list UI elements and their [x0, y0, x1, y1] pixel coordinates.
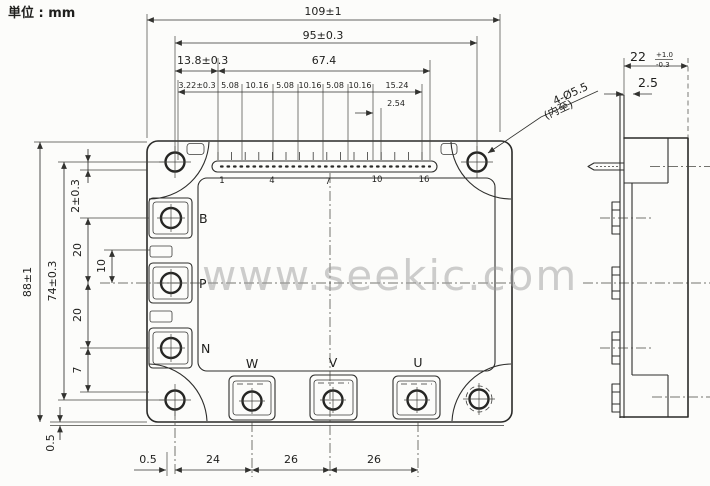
dim-26b: 26 — [367, 453, 381, 466]
dimensions-bottom: 0.5 24 26 26 — [134, 410, 418, 477]
dim-pitch-6: 10.16 — [349, 81, 372, 90]
terminal-B — [149, 198, 192, 238]
terminal-W — [229, 376, 275, 420]
terminal-N-cross — [157, 334, 185, 362]
dim-20-lower: 20 — [71, 308, 84, 322]
side-dimensions: 22 +1.0 -0.3 2.5 — [604, 49, 688, 138]
pin-strip — [212, 152, 437, 172]
terminal-W-cross — [239, 388, 265, 414]
side-bump-bottom — [612, 384, 620, 412]
corner-fillet-br — [452, 364, 511, 421]
pin-number-4: 4 — [269, 176, 274, 186]
side-outline — [588, 95, 710, 418]
dim-pitch-4: 10.16 — [299, 81, 322, 90]
dim-22: 22 — [630, 49, 646, 64]
dim-13-8: 13.8±0.3 — [177, 54, 228, 67]
dim-pitch-7: 15.24 — [386, 81, 409, 90]
dim-pitch-3: 5.08 — [276, 81, 294, 90]
terminal-V-block — [310, 375, 357, 420]
side-blocks — [624, 138, 668, 417]
dim-25: 2.5 — [638, 75, 658, 90]
technical-drawing-page: 単位 : mm — [0, 0, 710, 486]
dim-05-bottom: 0.5 — [139, 453, 157, 466]
unit-label: 単位 : mm — [8, 5, 75, 21]
drawing-canvas: 単位 : mm — [0, 0, 710, 486]
center-extensions-bottom — [175, 410, 418, 477]
dim-pitch-2: 10.16 — [246, 81, 269, 90]
dim-pitch-5: 5.08 — [326, 81, 344, 90]
pin-ticks — [218, 152, 422, 160]
pin-number-16: 16 — [419, 175, 430, 185]
dim-22-tol-minus: -0.3 — [656, 61, 670, 69]
notch-tl — [187, 144, 204, 155]
notch-tr — [441, 144, 457, 155]
terminal-U — [393, 376, 440, 419]
pin-number-10: 10 — [372, 175, 383, 185]
dim-22-tol-plus: +1.0 — [656, 51, 673, 59]
dim-95: 95±0.3 — [303, 29, 344, 42]
dim-20-upper: 20 — [71, 243, 84, 257]
side-centerlines — [600, 167, 710, 398]
dim-7: 7 — [71, 367, 84, 374]
dim-26a: 26 — [284, 453, 298, 466]
terminal-U-block — [393, 376, 440, 419]
watermark: www.seekic.com — [202, 251, 578, 300]
side-baseplate-edges — [620, 95, 624, 418]
side-tab-lower — [150, 311, 172, 322]
dim-24: 24 — [206, 453, 220, 466]
dim-pitch-0: 3.22±0.3 — [178, 81, 215, 90]
dimensions-top: 109±1 95±0.3 13.8±0.3 67.4 3.22±0.3 5.08… — [147, 5, 500, 160]
dim-109: 109±1 — [304, 5, 341, 18]
dim-2: 2±0.3 — [69, 179, 82, 213]
dim-pitch-1: 5.08 — [221, 81, 239, 90]
terminal-label-B: B — [199, 211, 208, 226]
front-view: 1 4 7 10 16 — [21, 5, 710, 479]
terminals-bottom: W V U — [229, 355, 440, 420]
dim-74: 74±0.3 — [46, 261, 59, 302]
dim-88: 88±1 — [21, 267, 34, 297]
dim-67-4: 67.4 — [312, 54, 337, 67]
dim-05-left: 0.5 — [44, 434, 57, 452]
terminal-label-N: N — [201, 341, 210, 356]
terminal-V-cross — [320, 387, 346, 413]
side-view: 22 +1.0 -0.3 2.5 — [588, 49, 710, 418]
hole-note: 4-Ø5.5 (内至) — [488, 80, 598, 153]
terminal-U-cross — [404, 387, 430, 413]
terminal-V — [310, 375, 357, 420]
terminal-N — [149, 328, 192, 368]
terminal-label-U: U — [413, 355, 422, 370]
side-tab-upper — [150, 246, 172, 257]
corner-fillet-bl — [149, 364, 207, 421]
terminal-label-W: W — [246, 356, 258, 371]
pin-number-1: 1 — [219, 176, 224, 186]
pin-numbers: 1 4 7 10 16 — [219, 175, 429, 187]
dimensions-left: 88±1 74±0.3 2±0.3 20 10 20 7 0.5 — [21, 142, 166, 452]
terminal-B-cross — [157, 204, 185, 232]
dim-10: 10 — [95, 259, 108, 273]
dim-2-54: 2.54 — [387, 99, 405, 108]
hole-note-leader — [488, 91, 598, 153]
